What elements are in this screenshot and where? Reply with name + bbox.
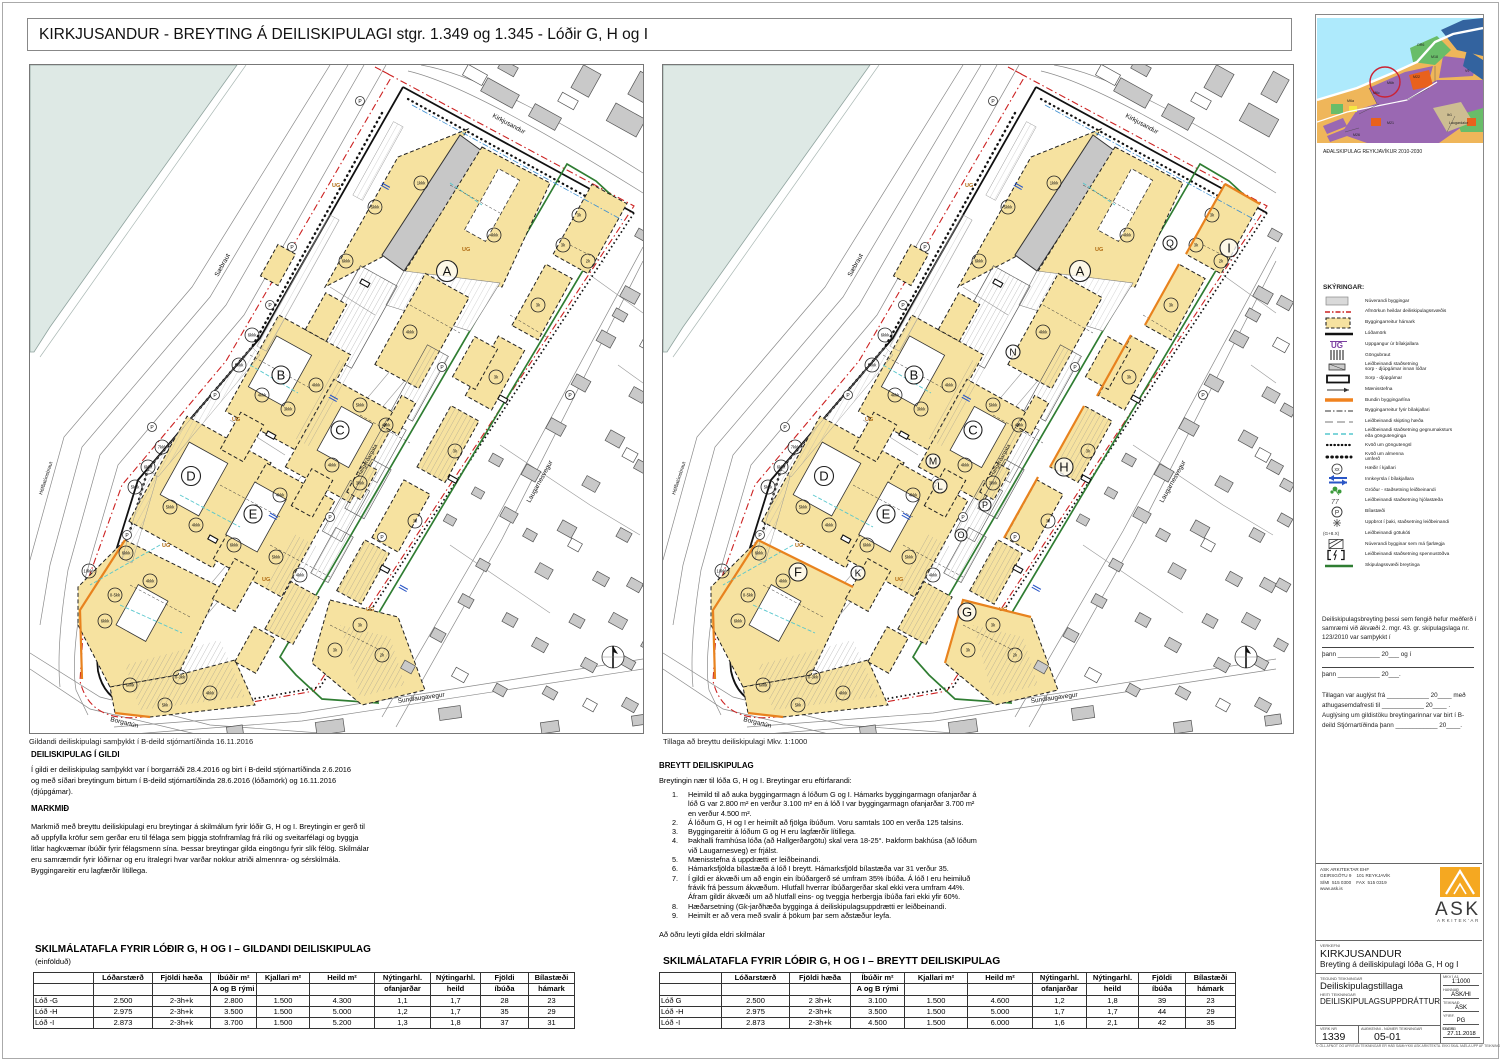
- svg-text:4kkk: 4kkk: [328, 463, 338, 468]
- svg-text:UG: UG: [1331, 341, 1343, 350]
- svg-text:4kkk: 4kkk: [276, 493, 286, 498]
- svg-text:F: F: [794, 565, 802, 580]
- svg-text:6kkk: 6kkk: [230, 543, 240, 548]
- svg-text:0-3kk: 0-3kk: [175, 675, 186, 680]
- svg-text:M6b: M6b: [1387, 81, 1394, 85]
- svg-text:Laugardalur: Laugardalur: [1449, 121, 1469, 125]
- svg-text:4kkk: 4kkk: [382, 423, 392, 428]
- svg-text:3kkk: 3kkk: [356, 481, 366, 486]
- svg-text:E: E: [882, 507, 891, 522]
- svg-text:0-5kk: 0-5kk: [110, 593, 121, 598]
- svg-text:4kkk: 4kkk: [296, 573, 306, 578]
- svg-text:xx: xx: [1335, 467, 1341, 473]
- svg-text:V9: V9: [1465, 69, 1469, 73]
- svg-text:5kkk: 5kkk: [235, 363, 245, 368]
- svg-text:UG: UG: [366, 607, 374, 613]
- svg-text:M22: M22: [1413, 75, 1420, 79]
- svg-text:1kkk: 1kkk: [417, 181, 427, 186]
- svg-text:L: L: [937, 482, 943, 493]
- svg-text:4kkk: 4kkk: [192, 523, 202, 528]
- svg-text:OR6: OR6: [1417, 43, 1424, 47]
- svg-text:UG: UG: [262, 577, 270, 583]
- svg-text:UG: UG: [162, 543, 170, 549]
- svg-text:7kkk: 7kkk: [158, 445, 168, 450]
- svg-text:P: P: [982, 500, 988, 510]
- svg-text:M18: M18: [1431, 55, 1438, 59]
- svg-text:E: E: [249, 507, 258, 522]
- svg-text:10kkk: 10kkk: [84, 569, 96, 574]
- svg-text:6kkk: 6kkk: [126, 683, 136, 688]
- svg-text:C: C: [968, 423, 977, 438]
- svg-text:O: O: [957, 530, 964, 540]
- svg-text:K: K: [855, 569, 862, 580]
- svg-text:4kkk: 4kkk: [312, 383, 322, 388]
- svg-text:A: A: [1076, 264, 1085, 279]
- svg-text:4kkk: 4kkk: [258, 393, 268, 398]
- svg-text:G: G: [962, 605, 972, 620]
- svg-text:M26: M26: [1353, 133, 1360, 137]
- svg-text:I: I: [1227, 241, 1231, 256]
- svg-text:P: P: [1335, 509, 1339, 516]
- svg-text:C: C: [335, 423, 344, 438]
- svg-text:6kkk: 6kkk: [248, 333, 258, 338]
- svg-text:M6c: M6c: [1373, 91, 1380, 95]
- svg-text:5kkk: 5kkk: [131, 485, 141, 490]
- svg-text:N: N: [1009, 348, 1016, 359]
- svg-text:5kkk: 5kkk: [166, 505, 176, 510]
- svg-text:6kkk: 6kkk: [122, 551, 132, 556]
- svg-text:UG: UG: [332, 183, 340, 189]
- svg-text:UG: UG: [232, 417, 240, 423]
- svg-text:M21: M21: [1387, 121, 1394, 125]
- svg-text:M: M: [929, 457, 937, 468]
- svg-text:5kkk: 5kkk: [356, 403, 366, 408]
- svg-text:B: B: [910, 368, 919, 383]
- svg-text:6kkk: 6kkk: [342, 259, 352, 264]
- svg-text:3kkk: 3kkk: [284, 407, 294, 412]
- svg-text:4kkk: 4kkk: [146, 579, 156, 584]
- svg-text:4kkk: 4kkk: [406, 330, 416, 335]
- svg-text:M6a: M6a: [1347, 99, 1354, 103]
- svg-text:B: B: [277, 368, 286, 383]
- svg-text:Ib1: Ib1: [1447, 113, 1452, 117]
- svg-text:D: D: [819, 469, 828, 484]
- svg-text:6kkk: 6kkk: [144, 465, 154, 470]
- svg-text:H: H: [1059, 460, 1068, 475]
- svg-text:Q: Q: [1166, 239, 1174, 250]
- svg-text:5kk: 5kk: [162, 703, 169, 708]
- svg-text:D: D: [186, 469, 195, 484]
- svg-text:6kkk: 6kkk: [101, 619, 111, 624]
- svg-text:5kkk: 5kkk: [272, 555, 282, 560]
- svg-text:A: A: [443, 264, 452, 279]
- svg-text:5kkk: 5kkk: [371, 205, 381, 210]
- svg-text:UG: UG: [462, 247, 470, 253]
- svg-text:4kkk: 4kkk: [490, 233, 500, 238]
- svg-text:4kkk: 4kkk: [206, 691, 216, 696]
